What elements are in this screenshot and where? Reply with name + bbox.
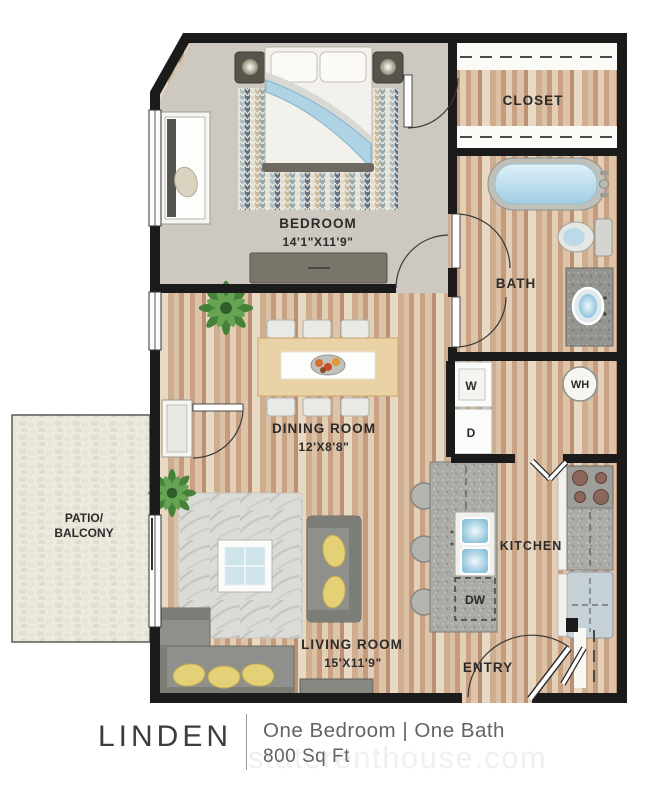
dining-room-dims: 12'X8'8" <box>299 440 350 454</box>
bath-door-upper-leaf <box>452 214 460 268</box>
closet-label: CLOSET <box>503 93 564 108</box>
patio-label-line2: BALCONY <box>54 526 113 540</box>
wall-closet-bath <box>448 148 622 156</box>
toilet-tank <box>595 219 612 256</box>
dining-chair <box>303 320 331 338</box>
food-item <box>315 359 323 367</box>
sink-tap-dot2 <box>603 312 606 315</box>
tub-handle-bottom <box>600 193 609 197</box>
burner <box>594 490 609 505</box>
food-item <box>320 367 326 373</box>
lamp-left <box>242 59 258 75</box>
bathtub-water <box>495 164 597 204</box>
tv-console <box>300 679 373 695</box>
wall-bedroom-bottom <box>160 284 396 293</box>
dining-chair <box>267 398 295 416</box>
burner <box>575 492 586 503</box>
tub-handle-top <box>600 171 609 175</box>
loveseat-arm-top <box>308 516 360 528</box>
wall-kitchen-top-left <box>451 454 515 463</box>
wall-laundry-left <box>446 361 455 457</box>
dining-chair <box>303 398 331 416</box>
plan-name: LINDEN <box>0 706 246 754</box>
bedroom-window <box>149 110 161 226</box>
living-room-dims: 15'X11'9" <box>324 656 382 670</box>
toilet-bowl-inner <box>563 228 585 246</box>
living-room-label: LIVING ROOM <box>301 637 403 652</box>
sink-tap-dot1 <box>603 296 606 299</box>
dining-room-label: DINING ROOM <box>272 421 376 436</box>
fridge-front-edge <box>558 574 567 636</box>
wall-hall-bath-upper <box>448 156 457 214</box>
bedroom-dims: 14'1"X11'9" <box>282 235 353 249</box>
dining-window <box>149 292 161 350</box>
pillow-right <box>320 52 366 82</box>
dishwasher-label: DW <box>465 593 486 607</box>
wall-hall-bath-mid <box>448 268 457 297</box>
bed-foot-bar <box>262 163 374 172</box>
bedroom-hall-door-leaf <box>404 75 412 127</box>
island-tap-dot <box>451 543 454 546</box>
vanity-sink-basin <box>579 294 597 318</box>
wall-bedroom-closet <box>448 43 457 148</box>
bath-door-lower-leaf <box>452 297 460 347</box>
loveseat-arm-bottom <box>308 610 360 622</box>
island-tap-dot <box>451 531 454 534</box>
dining-chair <box>341 398 369 416</box>
kitchen-label: KITCHEN <box>500 539 563 553</box>
tub-faucet-icon <box>600 180 609 189</box>
wall-bath-bottom <box>448 352 622 361</box>
kitchen-sink-bowl <box>461 548 489 574</box>
dryer-label: D <box>467 426 476 440</box>
dining-chair <box>267 320 295 338</box>
loveseat-back <box>349 518 360 620</box>
lamp-right <box>380 59 396 75</box>
watermark-text: staterenthouse.com <box>248 740 547 776</box>
entry-label: ENTRY <box>463 660 513 675</box>
bath-label: BATH <box>496 276 537 291</box>
bedroom-door-gap <box>396 284 448 293</box>
patio-door-landing-inner <box>167 405 187 452</box>
dining-chair <box>341 320 369 338</box>
patio-label-line1: PATIO/ <box>65 511 104 525</box>
washer-label: W <box>465 379 477 393</box>
food-item <box>332 358 340 366</box>
wall-entry-closet-stub <box>566 618 578 632</box>
plan-footer: LINDEN One Bedroom | One Bath 800 Sq Ft … <box>0 706 650 788</box>
burner <box>596 473 607 484</box>
kitchen-sink-bowl <box>461 518 489 544</box>
sofa-chaise-back <box>158 608 210 620</box>
counter-front-edge <box>558 466 567 570</box>
floor-plan-page: BEDROOM 14'1"X11'9" CLOSET BATH DINING R… <box>0 0 650 788</box>
window-seat-side <box>167 119 176 217</box>
wall-kitchen-top-right <box>563 454 622 463</box>
patio-slider-window <box>149 515 161 627</box>
dining-closet-door-leaf <box>193 404 243 411</box>
floor-plan-drawing: BEDROOM 14'1"X11'9" CLOSET BATH DINING R… <box>0 0 650 710</box>
burner <box>573 471 588 486</box>
entry-door-gap <box>462 693 532 703</box>
bedroom-label: BEDROOM <box>279 216 357 231</box>
yellow-pillow <box>208 666 240 688</box>
water-heater-label: WH <box>571 379 589 391</box>
